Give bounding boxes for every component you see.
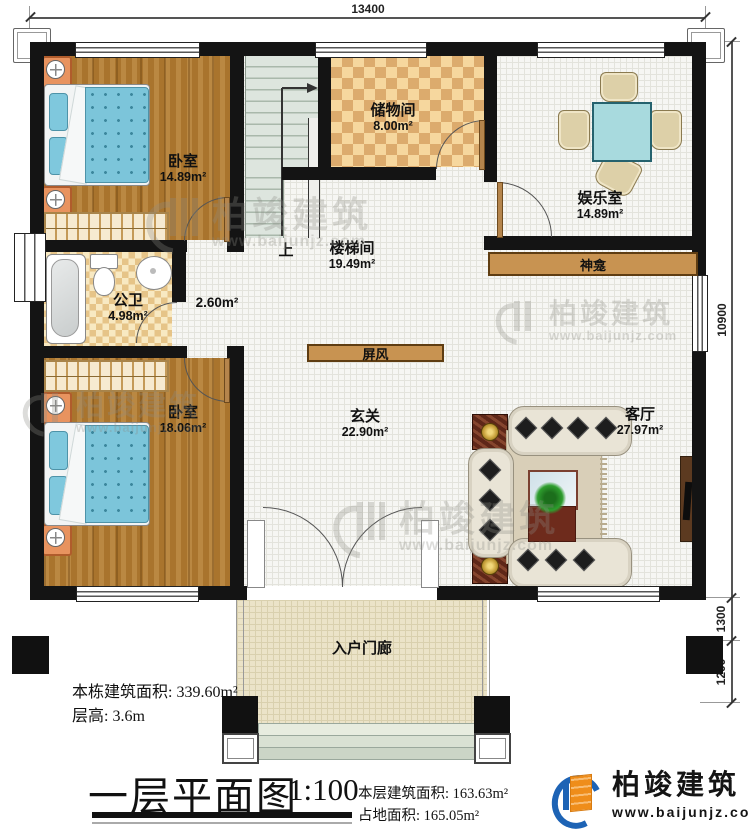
stair-direction-line bbox=[281, 88, 283, 236]
column bbox=[474, 696, 510, 733]
window bbox=[692, 275, 708, 352]
wall bbox=[318, 56, 331, 168]
room-label-bedroom2: 卧室 18.06m² bbox=[160, 404, 207, 436]
bed-blanket bbox=[85, 87, 149, 183]
lamp-icon bbox=[46, 190, 65, 209]
shrine-shelf: 神龛 bbox=[488, 252, 698, 276]
bed bbox=[44, 84, 150, 186]
bed-blanket bbox=[85, 425, 149, 523]
stair-direction-line bbox=[282, 87, 308, 89]
end-table-medallion-icon bbox=[481, 423, 499, 441]
dim-top-label: 13400 bbox=[340, 2, 396, 16]
dim-right-upper-label: 1300 bbox=[714, 599, 730, 639]
room-label-foyer: 玄关 22.90m² bbox=[342, 408, 389, 440]
window bbox=[315, 42, 427, 58]
game-table bbox=[592, 102, 652, 162]
title-underline-thin bbox=[92, 822, 352, 824]
end-table-medallion-icon bbox=[481, 557, 499, 575]
brand-website: www.baijunjz.com bbox=[612, 804, 750, 820]
room-label-storage: 储物间 8.00m² bbox=[370, 102, 415, 134]
stair-up-label: 上 bbox=[278, 242, 293, 259]
window bbox=[537, 586, 660, 602]
wall bbox=[484, 56, 497, 182]
wall bbox=[30, 42, 44, 233]
dim-right-total-label: 10900 bbox=[715, 290, 731, 350]
chair bbox=[650, 110, 682, 150]
lamp-icon bbox=[46, 60, 65, 79]
screen-partition: 屏风 bbox=[307, 344, 444, 362]
column bbox=[686, 636, 723, 674]
plan-scale: 1:100 bbox=[288, 772, 359, 808]
column-base bbox=[474, 733, 511, 764]
bathtub-basin bbox=[51, 259, 79, 337]
wall bbox=[172, 252, 186, 302]
building-total-area-text: 本栋建筑面积: 339.60m² bbox=[72, 678, 238, 702]
dim-ext bbox=[700, 597, 740, 598]
column-base bbox=[222, 733, 259, 764]
brand-logo-icon bbox=[552, 770, 604, 824]
wall bbox=[230, 358, 244, 586]
chair bbox=[600, 72, 638, 102]
wall bbox=[44, 346, 187, 358]
dim-ext bbox=[700, 702, 740, 703]
right-dimension-line bbox=[731, 42, 733, 703]
room-label-corridor: 2.60m² bbox=[196, 295, 239, 311]
room-label-porch: 入户门廊 bbox=[332, 640, 392, 657]
sink-drain bbox=[150, 268, 156, 274]
wall bbox=[692, 350, 706, 600]
wall bbox=[230, 56, 244, 240]
wall bbox=[198, 42, 315, 56]
wall bbox=[30, 586, 76, 600]
wall bbox=[425, 42, 537, 56]
wall bbox=[282, 167, 436, 180]
wall bbox=[658, 586, 706, 600]
room-label-bedroom1: 卧室 14.89m² bbox=[160, 153, 207, 185]
screen-label: 屏风 bbox=[362, 344, 388, 363]
pillow bbox=[49, 431, 68, 470]
door-leaf bbox=[479, 120, 485, 170]
porch-step bbox=[258, 747, 479, 760]
wall bbox=[227, 346, 244, 358]
brand-name: 柏竣建筑 bbox=[612, 770, 750, 801]
wall bbox=[437, 586, 537, 600]
door-leaf bbox=[224, 358, 230, 403]
wall bbox=[197, 586, 247, 600]
floor-area-text: 本层建筑面积: 163.63m² bbox=[358, 782, 508, 803]
wardrobe bbox=[44, 360, 169, 392]
column bbox=[12, 636, 49, 674]
stair-arrow-icon bbox=[307, 83, 318, 93]
lamp-icon bbox=[46, 396, 65, 415]
room-label-stairwell: 楼梯间 19.49m² bbox=[329, 240, 376, 272]
window bbox=[75, 42, 200, 58]
window bbox=[76, 586, 199, 602]
door-leaf bbox=[497, 182, 503, 238]
sink bbox=[136, 256, 172, 290]
pillow bbox=[49, 93, 68, 131]
bathtub bbox=[46, 254, 86, 344]
brand-logo: 柏竣建筑 www.baijunjz.com bbox=[552, 770, 750, 824]
shrine-label: 神龛 bbox=[580, 255, 606, 274]
wall bbox=[484, 236, 706, 250]
porch-floor bbox=[237, 600, 487, 723]
entry-door-jamb bbox=[421, 520, 439, 588]
title-underline bbox=[92, 812, 352, 818]
top-dimension-line bbox=[30, 17, 706, 19]
floor-height-text: 层高: 3.6m bbox=[72, 702, 145, 726]
stair-treads-lower bbox=[245, 167, 284, 238]
plant-icon bbox=[534, 482, 566, 514]
door-leaf bbox=[224, 197, 230, 242]
wall bbox=[44, 240, 187, 252]
bed bbox=[44, 422, 150, 526]
wall bbox=[30, 300, 44, 600]
chair bbox=[558, 110, 590, 150]
room-label-bathroom: 公卫 4.98m² bbox=[108, 292, 148, 324]
room-label-living: 客厅 27.97m² bbox=[617, 406, 664, 438]
room-label-entertainment: 娱乐室 14.89m² bbox=[577, 190, 624, 222]
window bbox=[537, 42, 665, 58]
lamp-icon bbox=[46, 528, 65, 547]
floor-plan-canvas: 13400 10900 1300 1200 bbox=[0, 0, 750, 836]
porch-edge bbox=[482, 600, 490, 697]
window bbox=[14, 233, 46, 302]
site-area-text: 占地面积: 165.05m² bbox=[358, 804, 479, 825]
